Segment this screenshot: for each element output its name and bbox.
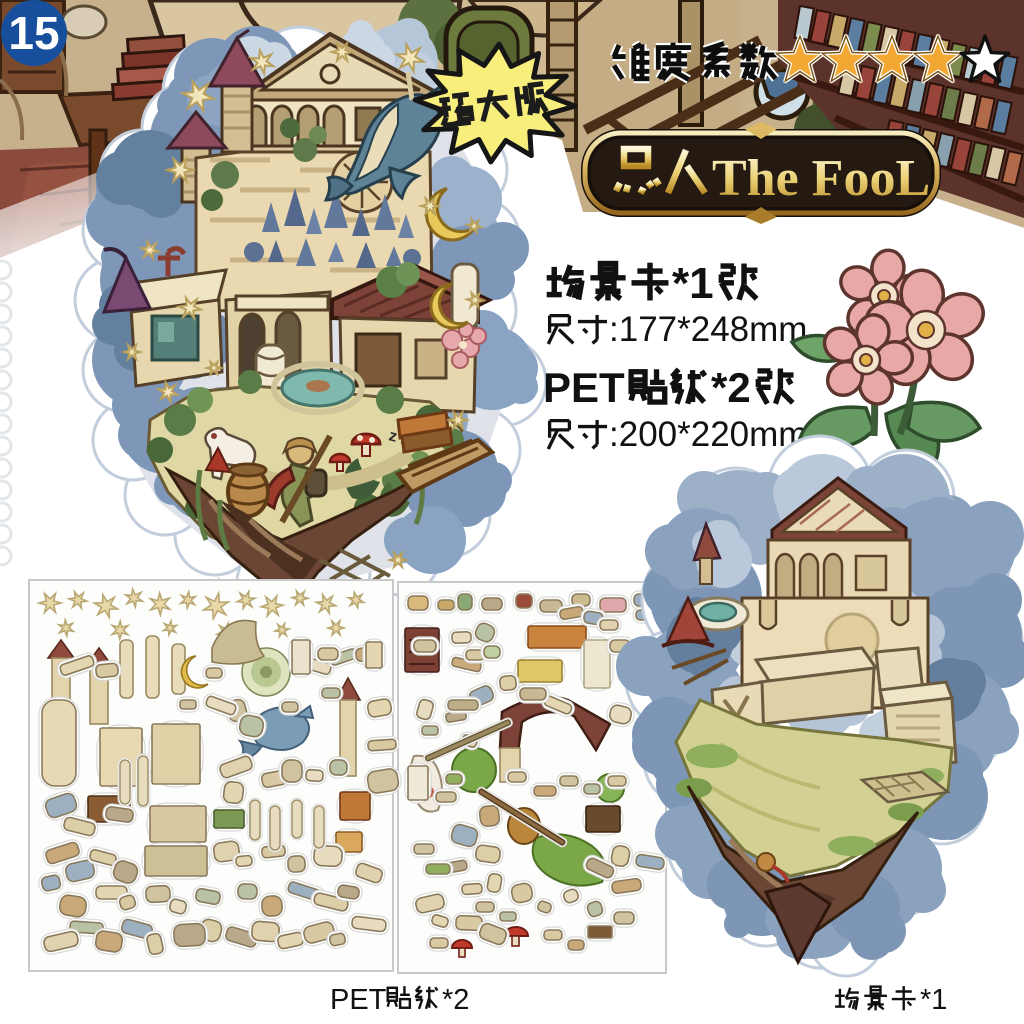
svg-text:*1: *1	[672, 259, 714, 308]
svg-text:*1: *1	[920, 984, 947, 1016]
svg-text:*2: *2	[442, 984, 469, 1016]
svg-text::177*248mm: :177*248mm	[609, 310, 807, 349]
svg-text:15: 15	[8, 7, 59, 59]
svg-text:*2: *2	[711, 364, 751, 411]
svg-text:PET: PET	[330, 984, 387, 1016]
svg-text::200*220mm: :200*220mm	[609, 415, 807, 454]
svg-text:The FooL: The FooL	[712, 150, 930, 207]
svg-text:PET: PET	[543, 364, 625, 411]
